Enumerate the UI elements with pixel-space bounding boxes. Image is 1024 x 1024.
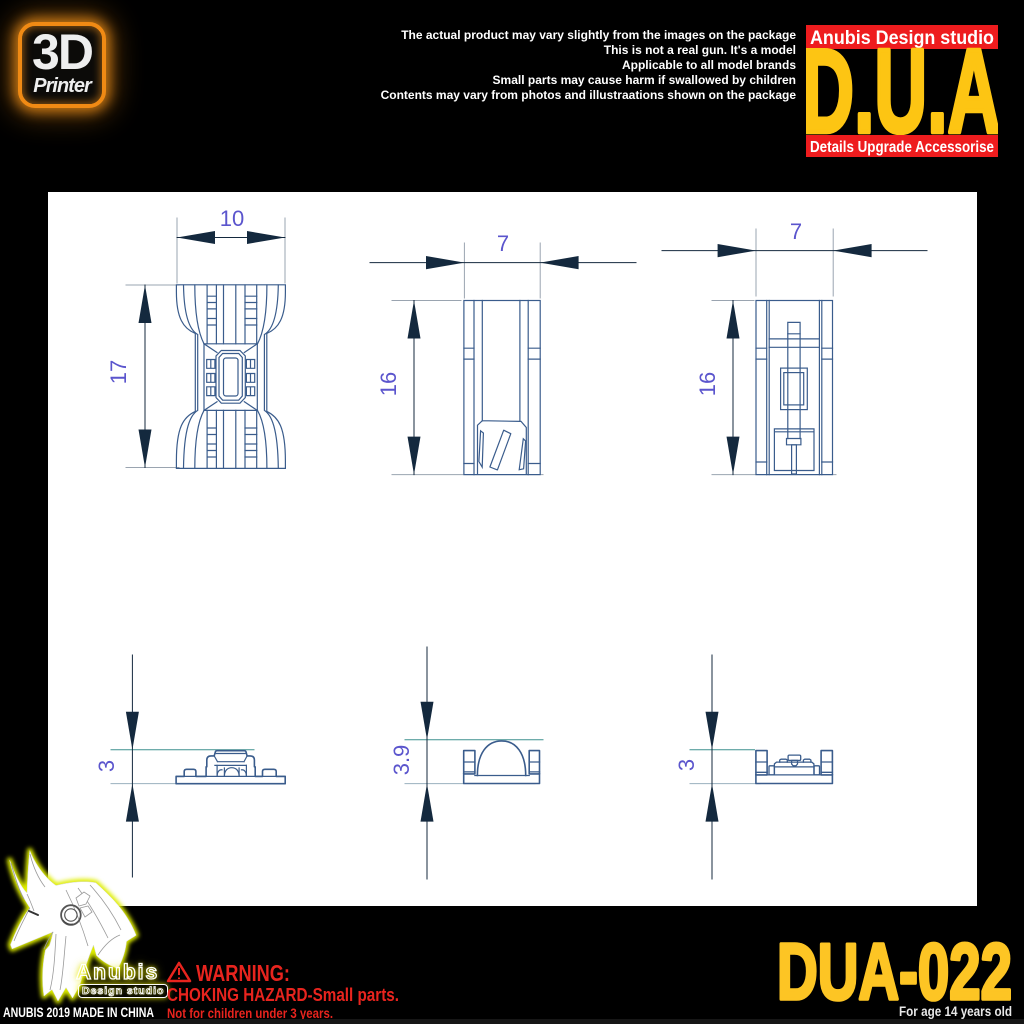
svg-text:17: 17 [106,360,131,384]
svg-text:3: 3 [94,760,119,772]
svg-text:WARNING:: WARNING: [196,960,290,986]
svg-text:7: 7 [790,219,802,244]
svg-text:DUA-022: DUA-022 [778,935,1012,1005]
svg-text:3: 3 [674,759,699,771]
svg-text:3.9: 3.9 [389,745,414,776]
svg-text:CHOKING HAZARD-Small parts.: CHOKING HAZARD-Small parts. [167,984,399,1005]
svg-text:7: 7 [497,231,509,256]
svg-text:For age 14 years old: For age 14 years old [899,1004,1012,1019]
svg-text:16: 16 [695,372,720,396]
svg-text:16: 16 [376,372,401,396]
svg-text:10: 10 [220,206,244,231]
svg-text:ANUBIS 2019 MADE IN CHINA: ANUBIS 2019 MADE IN CHINA [3,1005,154,1020]
